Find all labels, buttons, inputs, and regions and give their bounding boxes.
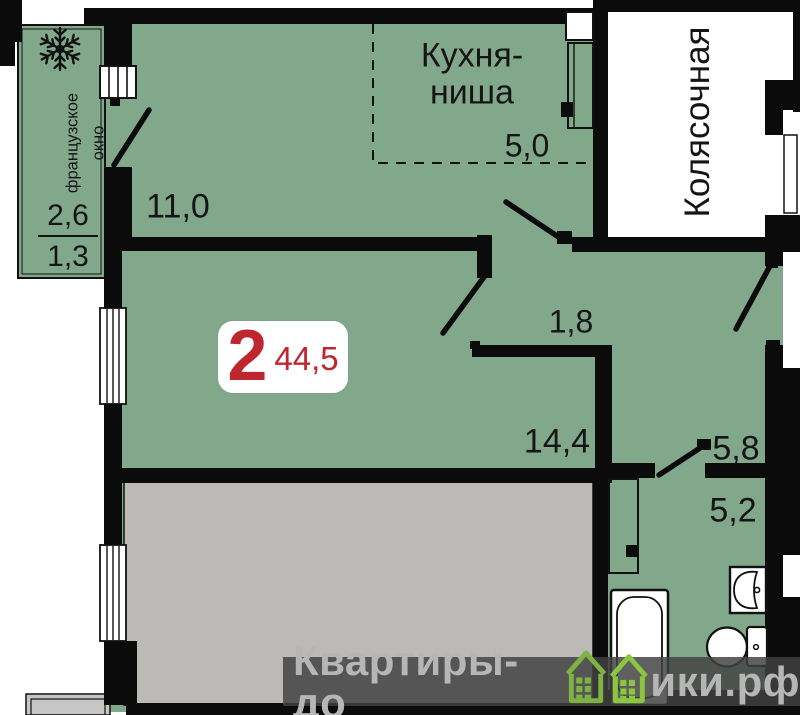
watermark-text-right: ики.рф — [650, 661, 800, 703]
kitchen-niche-label: Кухня- ниша — [421, 37, 523, 110]
sink-icon — [730, 567, 766, 613]
floor-plan: Кухня- ниша 5,0 11,0 1,8 14,4 5,8 5,2 Ко… — [0, 0, 800, 715]
watermark-text-left: Квартиры-до — [293, 640, 568, 715]
room-11-area: 11,0 — [146, 189, 210, 226]
bathroom-door-hinge — [697, 439, 711, 450]
loggia-area-fraction: 2,6 1,3 — [38, 199, 98, 273]
neighbor-window-icon — [100, 545, 126, 641]
badge-total-area: 44,5 — [274, 342, 338, 375]
living-room-area: 14,4 — [524, 424, 590, 461]
stroller-room-label: Колясочная — [679, 26, 717, 217]
corridor-area: 5,8 — [712, 431, 759, 468]
neighbor-loggia-outline — [26, 694, 110, 715]
stroller-window-icon — [784, 135, 797, 213]
house-logo-icon — [564, 644, 655, 706]
bedroom-window-icon — [100, 308, 126, 404]
hall-area: 1,8 — [549, 305, 593, 340]
watermark: Квартиры-до ики.рф — [283, 657, 800, 706]
apartment-badge: 2 44,5 — [218, 321, 348, 393]
badge-room-count: 2 — [227, 320, 267, 392]
loggia-area-full: 2,6 — [38, 199, 98, 235]
kitchen-niche-area: 5,0 — [505, 129, 549, 164]
bathroom-area: 5,2 — [709, 493, 756, 530]
loggia-area-counted: 1,3 — [38, 235, 98, 273]
french-window-label: французское окно — [60, 93, 111, 193]
